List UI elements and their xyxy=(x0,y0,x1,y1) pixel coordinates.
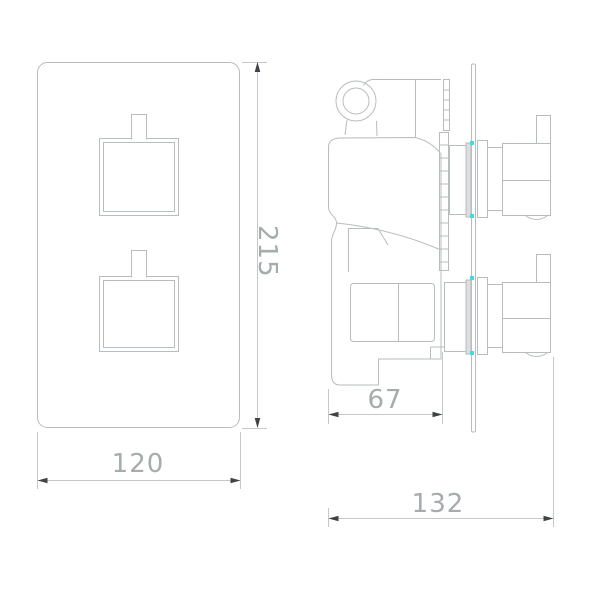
front-knob-upper xyxy=(100,115,179,216)
dim-side-overall-depth: 132 xyxy=(329,357,554,527)
side-view xyxy=(329,64,551,432)
wall-plate-section xyxy=(472,64,476,432)
arrow-left-icon xyxy=(329,412,339,418)
dim-side-overall-depth-label: 132 xyxy=(412,489,465,519)
lower-inlet-block xyxy=(351,284,435,342)
side-valve-body xyxy=(329,80,472,386)
lower-handle-bump xyxy=(526,353,547,357)
arrow-left-icon xyxy=(38,478,48,484)
dim-front-width-label: 120 xyxy=(112,449,165,479)
pipe-ring-outer xyxy=(336,81,376,121)
arrow-left-icon xyxy=(329,516,339,522)
arrow-right-icon xyxy=(231,478,241,484)
dim-front-height: 215 xyxy=(242,62,282,429)
drawing-sheet: 215 120 xyxy=(0,0,600,600)
dim-side-body-depth-label: 67 xyxy=(367,385,402,415)
front-knob-lower-tab xyxy=(132,251,147,278)
front-knob-upper-tab xyxy=(132,115,147,140)
upper-handle-bump xyxy=(526,216,547,220)
side-handle-lower xyxy=(478,255,551,357)
lower-handle-tab xyxy=(537,255,551,283)
upper-handle-tab xyxy=(537,116,551,144)
upper-escutcheon xyxy=(478,141,488,218)
marker-icon xyxy=(470,276,474,280)
lower-escutcheon xyxy=(478,278,488,355)
upper-flange-bar xyxy=(466,143,471,217)
arrow-up-icon xyxy=(255,62,261,72)
arrow-down-icon xyxy=(255,418,261,428)
front-knob-lower xyxy=(100,251,179,352)
pipe-ring-inner xyxy=(343,88,369,114)
side-handle-upper xyxy=(478,116,551,220)
rib-strip-upper xyxy=(444,80,450,131)
dim-front-height-label: 215 xyxy=(252,225,282,278)
marker-icon xyxy=(470,141,474,145)
lower-handle-body xyxy=(503,283,551,353)
cad-drawing: 215 120 xyxy=(0,0,600,600)
front-view xyxy=(38,63,240,428)
arrow-right-icon xyxy=(544,516,554,522)
marker-icon xyxy=(470,214,474,218)
lower-flange-bar xyxy=(466,280,471,354)
dim-front-width: 120 xyxy=(38,432,241,489)
upper-handle-body xyxy=(503,144,551,216)
arrow-right-icon xyxy=(433,412,443,418)
dim-side-body-depth: 67 xyxy=(329,352,443,424)
marker-icon xyxy=(470,351,474,355)
